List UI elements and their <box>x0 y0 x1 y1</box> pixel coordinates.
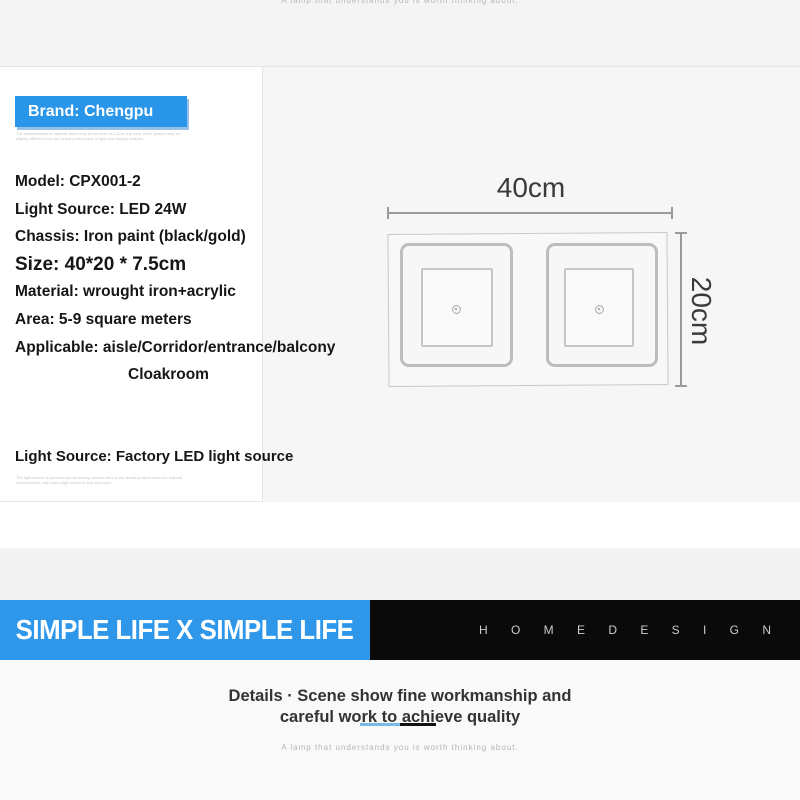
height-dimension-line <box>680 232 682 387</box>
specs-panel: Brand: Chengpu The measurement is manual… <box>0 67 340 502</box>
height-dimension-label: 20cm <box>685 261 717 361</box>
top-slogan-text: A lamp that understands you is worth thi… <box>0 0 800 5</box>
details-heading-line1: Details · Scene show fine workmanship an… <box>0 686 800 707</box>
homedesign-wordmark: H O M E D E S I G N <box>479 623 781 637</box>
brand-bar-slogan: SIMPLE LIFE X SIMPLE LIFE <box>16 614 354 646</box>
dimension-drawing-panel: 40cm 20cm <box>262 67 800 502</box>
product-detail-page: A lamp that understands you is worth thi… <box>0 0 800 800</box>
light-source-note: Light Source: Factory LED light source <box>15 448 293 465</box>
brand-bar: SIMPLE LIFE X SIMPLE LIFE H O M E D E S … <box>0 600 800 660</box>
width-dimension-label: 40cm <box>451 172 611 204</box>
main-section: 40cm 20cm Brand: Chengpu The measurement… <box>0 67 800 502</box>
spec-applicable: Applicable: aisle/Corridor/entrance/balc… <box>15 334 335 362</box>
brand-bar-blue-segment: SIMPLE LIFE X SIMPLE LIFE <box>0 600 370 660</box>
brand-badge: Brand: Chengpu <box>15 96 187 127</box>
white-spacer-strip <box>0 502 800 548</box>
gray-spacer-band <box>0 548 800 600</box>
details-section: Details · Scene show fine workmanship an… <box>0 660 800 800</box>
top-strip: A lamp that understands you is worth thi… <box>0 0 800 67</box>
spec-chassis: Chassis: Iron paint (black/gold) <box>15 223 335 251</box>
spec-cloakroom: Cloakroom <box>128 361 335 389</box>
details-underline <box>360 723 436 726</box>
right-screw-icon <box>595 305 604 314</box>
spec-material: Material: wrought iron+acrylic <box>15 278 335 306</box>
fine-print-disclaimer-bottom: The light source is provided by the fact… <box>16 475 188 485</box>
details-heading: Details · Scene show fine workmanship an… <box>0 686 800 727</box>
left-screw-icon <box>452 305 461 314</box>
spec-area: Area: 5-9 square meters <box>15 306 335 334</box>
width-dimension-line <box>387 212 673 214</box>
underline-blue-segment <box>360 723 400 726</box>
spec-list: Model: CPX001-2 Light Source: LED 24W Ch… <box>15 168 335 389</box>
underline-black-segment <box>400 723 436 726</box>
spec-size: Size: 40*20 * 7.5cm <box>15 251 335 279</box>
brand-bar-black-segment: H O M E D E S I G N <box>370 600 800 660</box>
bottom-slogan-text: A lamp that understands you is worth thi… <box>0 743 800 752</box>
spec-model: Model: CPX001-2 <box>15 168 335 196</box>
spec-light-source: Light Source: LED 24W <box>15 196 335 224</box>
fine-print-disclaimer: The measurement is manual, there may be … <box>16 131 188 141</box>
